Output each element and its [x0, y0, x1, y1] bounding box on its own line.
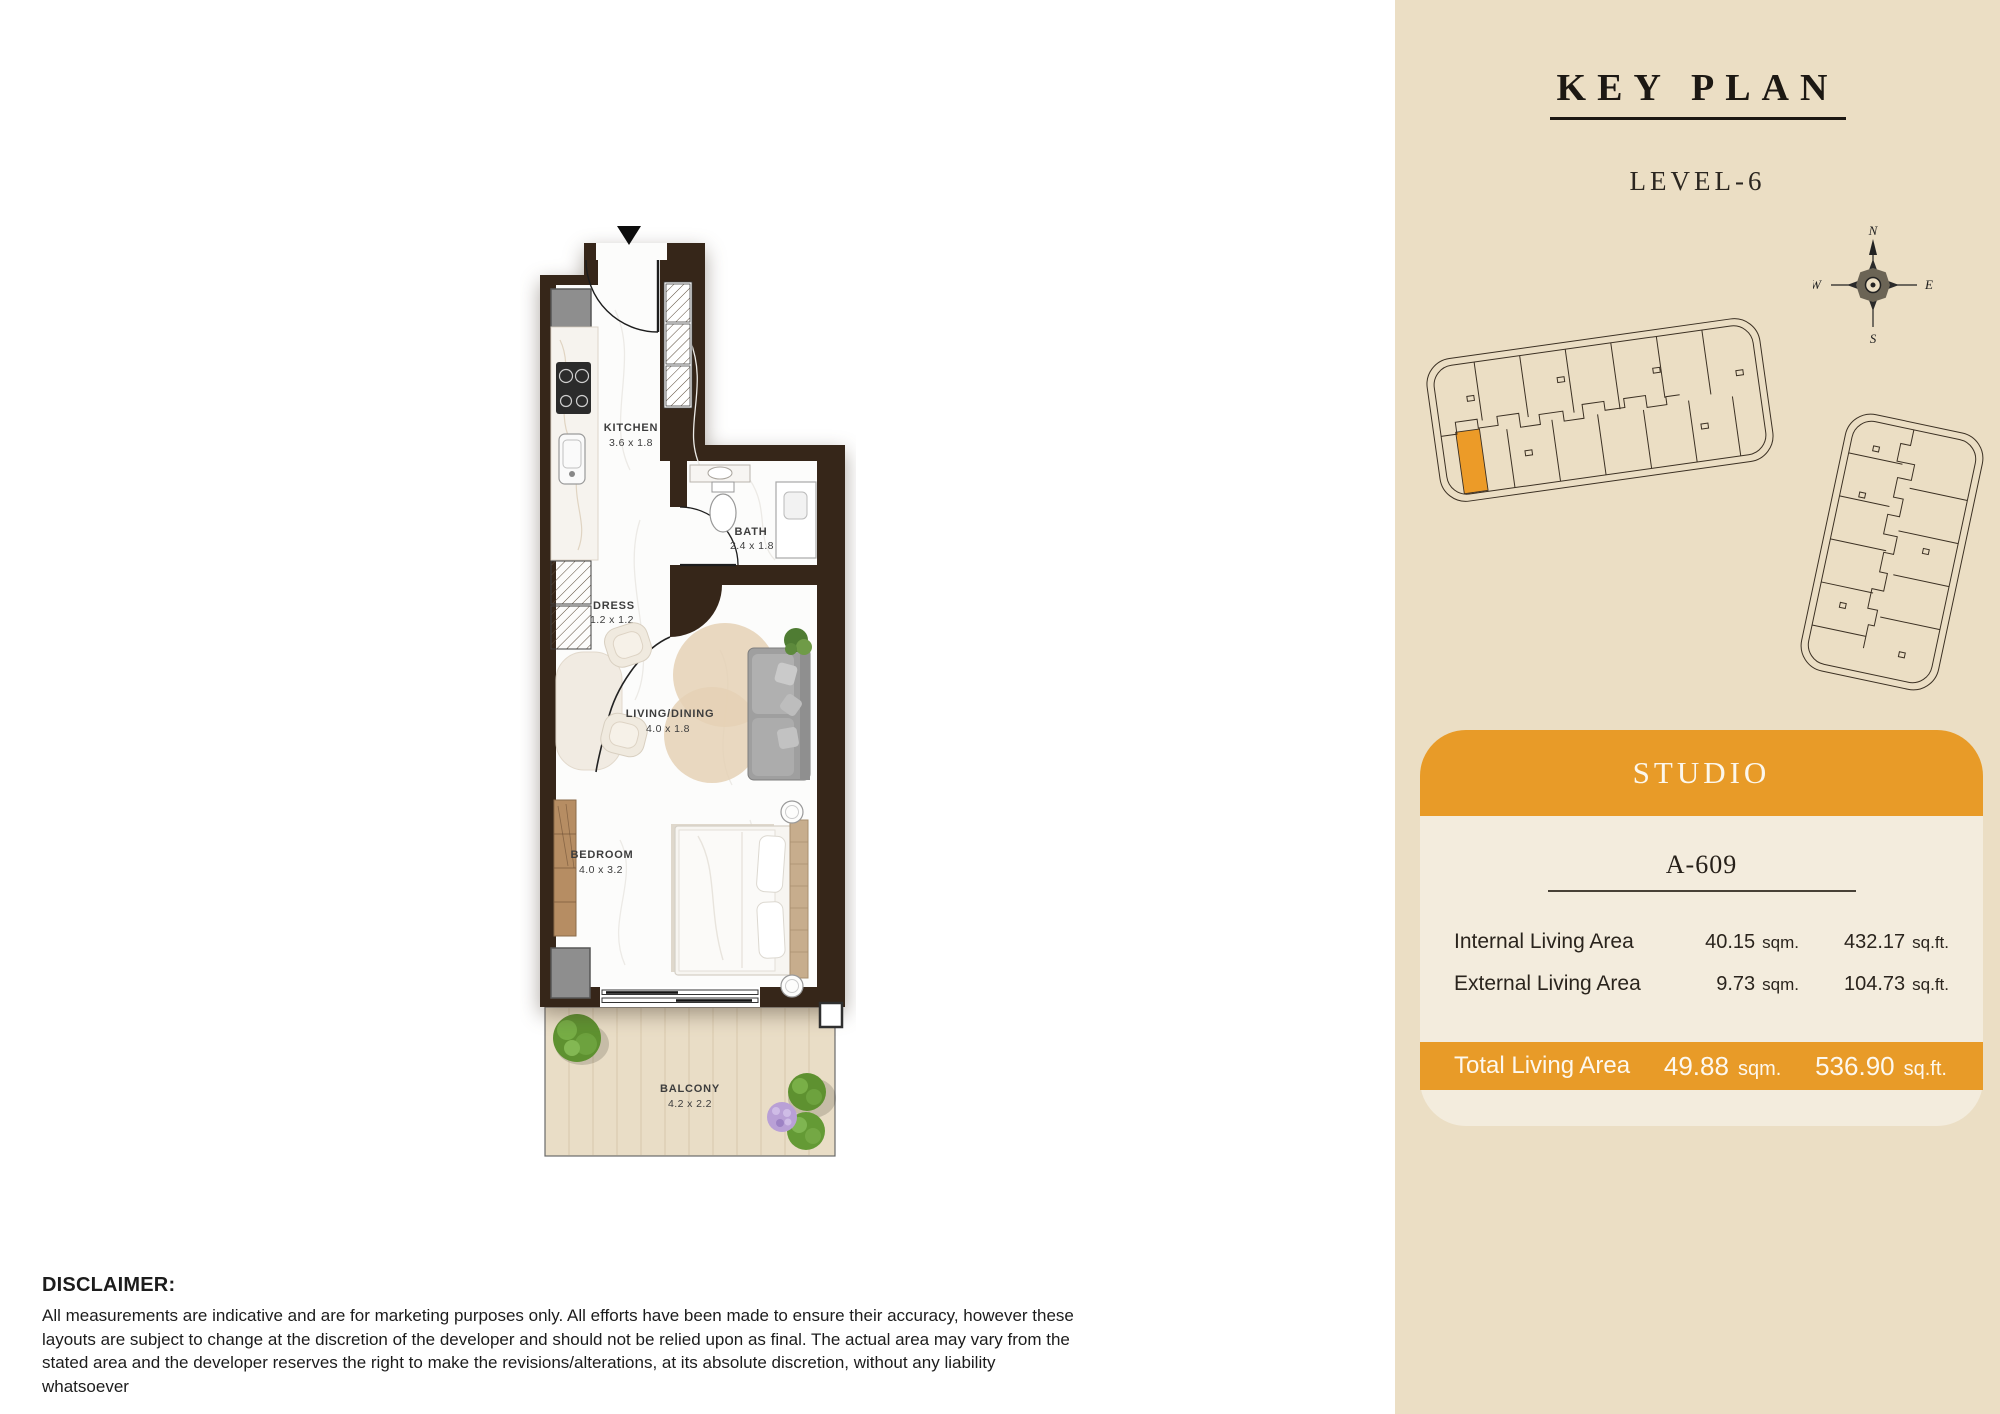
unit-type-header: STUDIO [1420, 730, 1983, 816]
key-plan-header: KEY PLAN [1395, 66, 2000, 120]
level-label: LEVEL-6 [1395, 166, 2000, 197]
entry-arrow-icon [617, 226, 641, 245]
key-plan-title: KEY PLAN [1395, 66, 2000, 110]
headboard [790, 820, 808, 978]
highlighted-unit [1456, 429, 1488, 494]
sliding-door [600, 987, 760, 1007]
external-sqm-value: 9.73 [1716, 973, 1755, 996]
kitchen-sink [559, 434, 585, 484]
unit-card-body: A-609 Internal Living Area 40.15 sqm. 43… [1420, 816, 1983, 1126]
unit-number: A-609 [1420, 816, 1983, 880]
internal-area-label: Internal Living Area [1454, 930, 1684, 954]
internal-sqm-unit: sqm. [1762, 933, 1799, 953]
external-sqm-unit: sqm. [1762, 975, 1799, 995]
room-dims-bedroom: 4.0 x 3.2 [579, 864, 623, 876]
total-sqm-value: 49.88 [1664, 1051, 1729, 1082]
room-dims-living: 4.0 x 1.8 [646, 723, 690, 735]
room-dims-bath: 2.4 x 1.8 [730, 540, 774, 552]
shower [776, 482, 816, 558]
key-plan-panel: KEY PLAN LEVEL-6 [1395, 0, 2000, 1414]
disclaimer-text: All measurements are indicative and are … [42, 1304, 1080, 1398]
room-label-balcony: BALCONY [660, 1083, 720, 1095]
hall-closet [664, 282, 692, 408]
title-underline [1550, 117, 1846, 120]
total-area-band: Total Living Area 49.88 sqm. 536.90 sq.f… [1420, 1042, 1983, 1090]
compass-n: N [1868, 223, 1879, 238]
total-sqft-value: 536.90 [1815, 1051, 1895, 1082]
disclaimer-title: DISCLAIMER: [42, 1274, 1080, 1297]
balcony: BALCONY 4.2 x 2.2 [545, 1007, 836, 1156]
internal-area-row: Internal Living Area 40.15 sqm. 432.17 s… [1420, 930, 1983, 972]
wardrobe [554, 800, 576, 936]
rug-circle [664, 687, 760, 783]
bath-vanity [690, 465, 750, 482]
room-label-living: LIVING/DINING [626, 708, 715, 720]
external-area-row: External Living Area 9.73 sqm. 104.73 sq… [1420, 972, 1983, 1014]
area-rows: Internal Living Area 40.15 sqm. 432.17 s… [1420, 930, 1983, 1014]
stove [556, 362, 591, 414]
total-sqm-unit: sqm. [1738, 1058, 1781, 1081]
shaft-box [551, 948, 590, 998]
external-sqft-unit: sq.ft. [1912, 975, 1949, 995]
room-label-kitchen: KITCHEN [604, 422, 659, 434]
brochure-page: BALCONY 4.2 x 2.2 [0, 0, 2000, 1414]
key-plan-buildings [1395, 300, 2000, 700]
internal-sqft-value: 432.17 [1844, 931, 1905, 954]
building-a-outline [1424, 315, 1777, 504]
side-table [781, 801, 803, 823]
total-area-label: Total Living Area [1454, 1052, 1630, 1080]
room-dims-kitchen: 3.6 x 1.8 [609, 437, 653, 449]
building-b-outline [1796, 409, 1987, 694]
disclaimer: DISCLAIMER: All measurements are indicat… [42, 1274, 1080, 1398]
unit-type-label: STUDIO [1633, 755, 1771, 791]
room-label-dress: DRESS [593, 600, 635, 612]
sofa [748, 648, 810, 780]
external-sqft-value: 104.73 [1844, 973, 1905, 996]
room-label-bedroom: BEDROOM [570, 849, 633, 861]
room-dims-balcony: 4.2 x 2.2 [668, 1098, 712, 1110]
side-table [781, 975, 803, 997]
internal-sqm-value: 40.15 [1705, 931, 1755, 954]
internal-sqft-unit: sq.ft. [1912, 933, 1949, 953]
balcony-column [820, 1003, 842, 1027]
toilet [710, 482, 736, 532]
total-sqft-unit: sq.ft. [1904, 1058, 1947, 1081]
compass-w: W [1813, 277, 1822, 292]
shaft-box [551, 289, 591, 327]
floor-plan: BALCONY 4.2 x 2.2 [520, 220, 856, 1170]
compass-e: E [1924, 277, 1933, 292]
unit-number-underline [1548, 890, 1856, 892]
bed [675, 820, 808, 978]
room-label-bath: BATH [735, 526, 768, 538]
unit-info-card: STUDIO A-609 Internal Living Area 40.15 … [1420, 730, 1983, 1126]
external-area-label: External Living Area [1454, 972, 1684, 996]
